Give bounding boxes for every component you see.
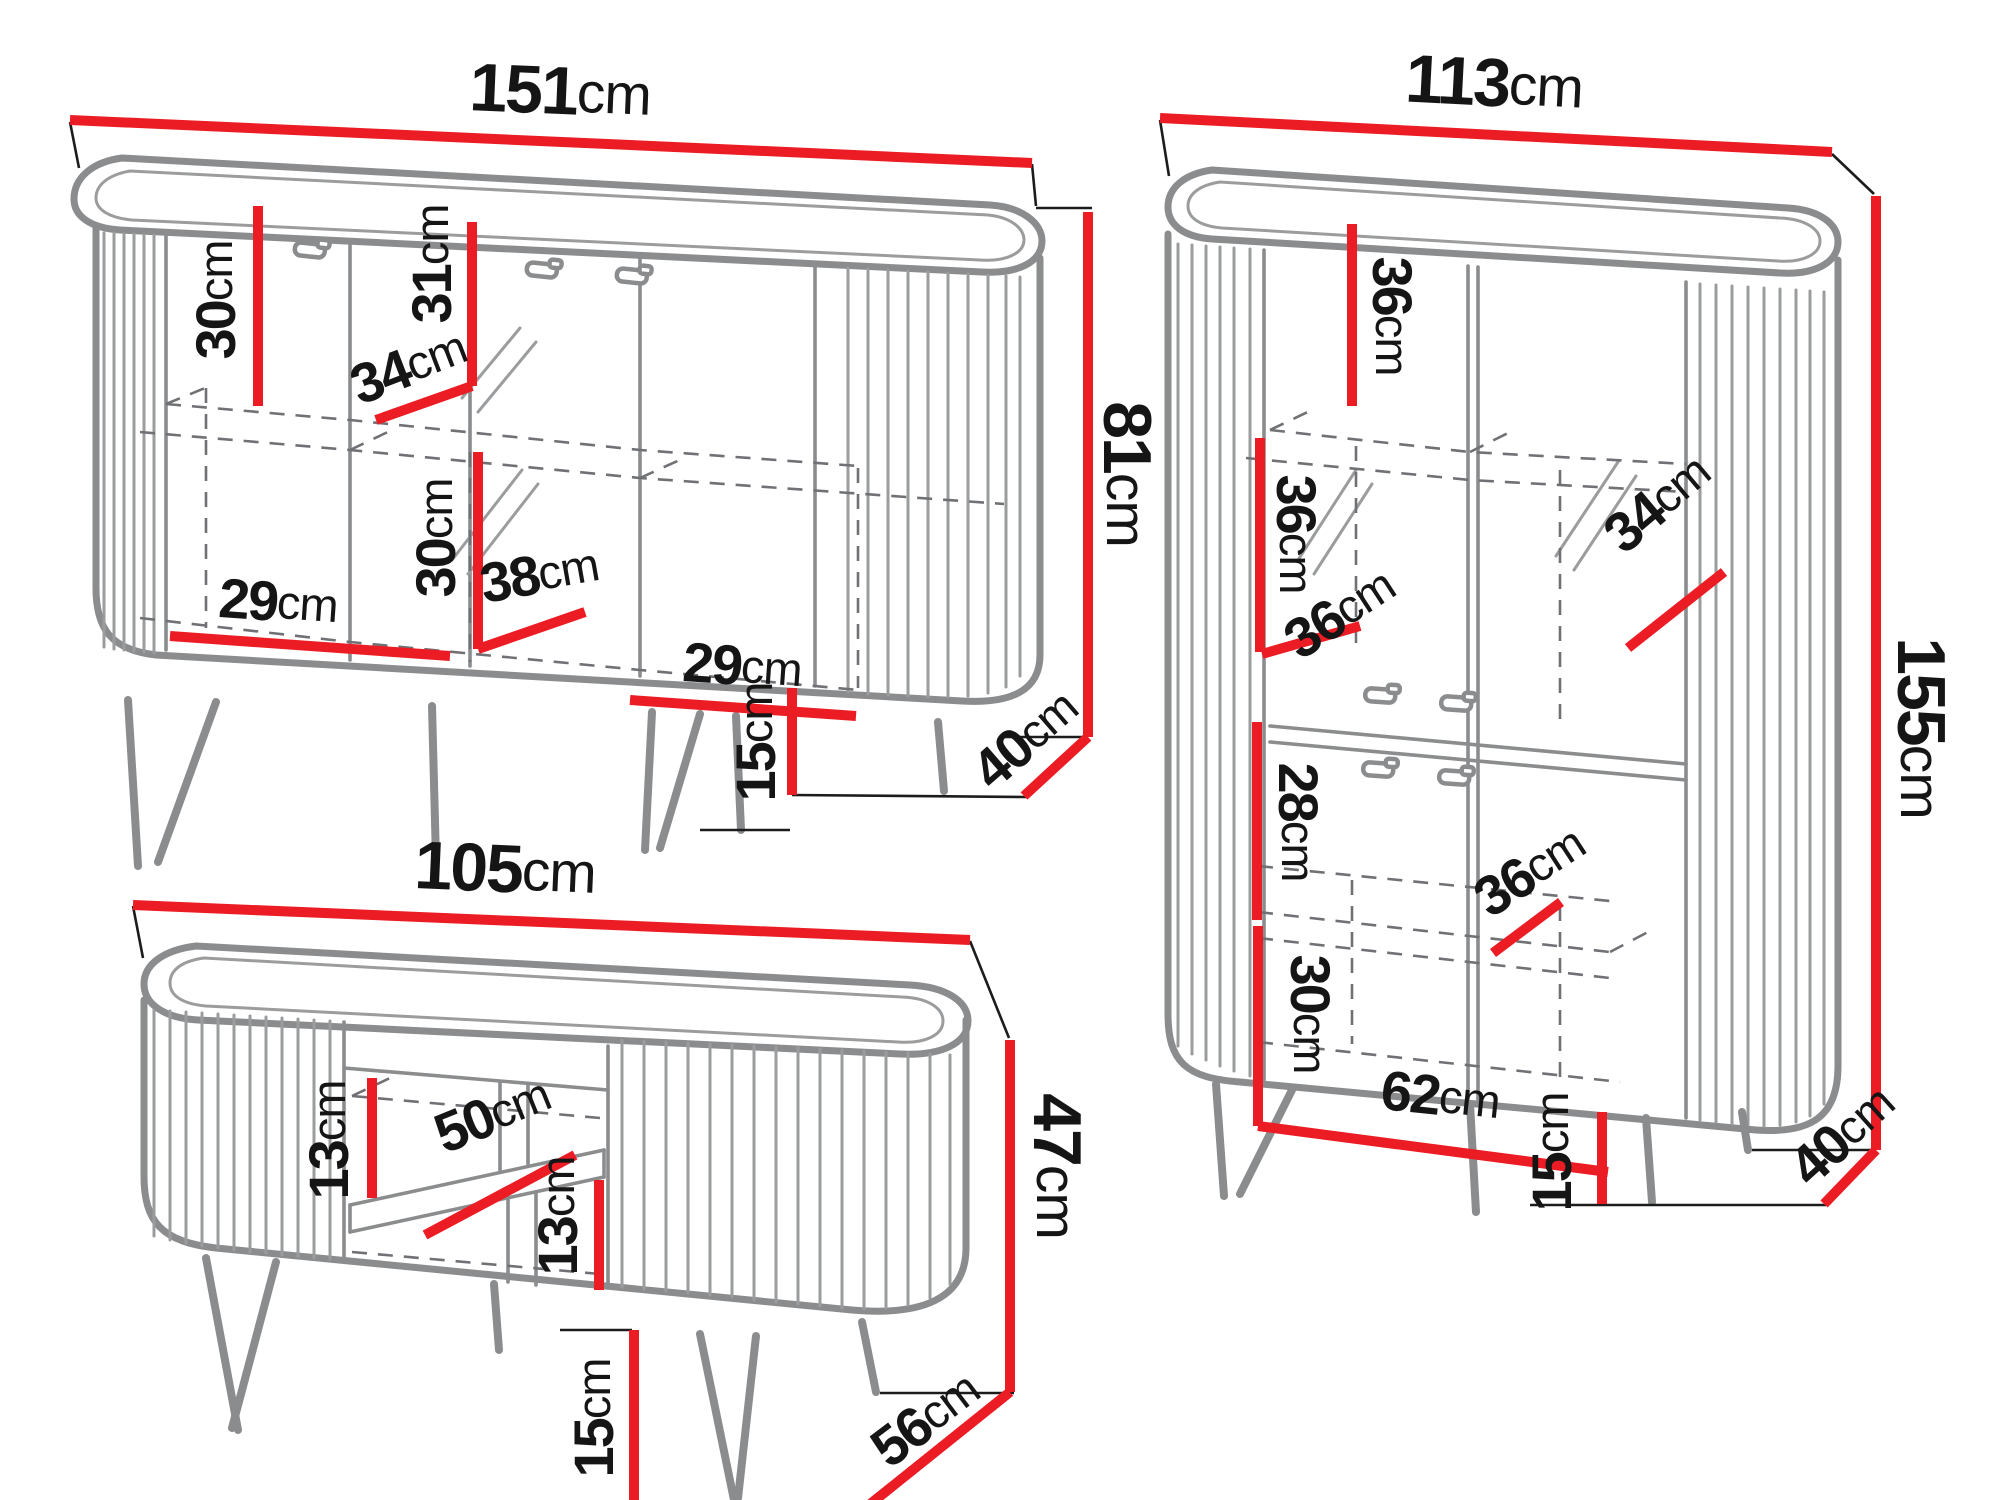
sideboard-door-height-label: 31cm: [400, 205, 463, 324]
sideboard-lower-width-label: 38cm: [475, 532, 603, 615]
sideboard-bottom-left-label: 29cm: [217, 566, 340, 637]
sideboard-height-label: 81cm: [1089, 401, 1165, 547]
sideboard-depth-label: 40cm: [959, 676, 1090, 802]
cabinet-dim-lines: [1160, 118, 1876, 1204]
cabinet-width-label: 113cm: [1404, 40, 1585, 125]
cabinet-handles: [1363, 683, 1476, 785]
sideboard-lower-height-label: 30cm: [404, 479, 467, 598]
cabinet-bottom-width-label: 62cm: [1378, 1058, 1503, 1133]
handle-icon: [526, 257, 562, 278]
tvstand-fluting-right: [622, 1040, 950, 1309]
cabinet-top-height-label: 36cm: [1361, 257, 1424, 376]
sideboard-lower-width-dim-line: [478, 612, 585, 649]
cabinet-top-shelf-dim-line: [1628, 572, 1724, 648]
cabinet-lower-height-label: 28cm: [1267, 763, 1330, 882]
cabinet-drawing: [1168, 170, 1838, 1212]
tvstand-niche-lower-label: 13cm: [526, 1157, 589, 1276]
cabinet-fluting-left: [1178, 244, 1250, 1076]
tvstand-niche-upper-label: 13cm: [297, 1081, 360, 1200]
handle-icon: [1441, 691, 1476, 711]
tvstand-width-dim-line: [133, 905, 970, 940]
tvstand-height-label: 47cm: [1019, 1093, 1095, 1239]
cabinet-mid-height-label: 36cm: [1265, 475, 1328, 594]
handle-icon: [1365, 683, 1400, 703]
sideboard-fluting-right: [848, 268, 1020, 697]
tvstand-leg-label: 15cm: [562, 1359, 625, 1478]
cabinet-bottom-height-label: 30cm: [1279, 955, 1342, 1074]
furniture-dimension-diagram: 151cm 81cm 40cm 30cm 31cm 34cm 30cm 38cm…: [0, 0, 2000, 1500]
handle-icon: [1439, 765, 1474, 785]
sideboard-dim-lines: [70, 120, 1088, 796]
cabinet-top-slab-inner: [1188, 182, 1820, 261]
diagram-canvas: 151cm 81cm 40cm 30cm 31cm 34cm 30cm 38cm…: [0, 0, 2000, 1500]
sideboard-fluting-left: [104, 233, 154, 653]
cabinet-lower-shelf-label: 36cm: [1462, 811, 1596, 929]
tvstand-width-label: 105cm: [413, 827, 598, 911]
cabinet-fluting-right: [1700, 284, 1824, 1126]
tvstand-top-slab-inner: [170, 958, 943, 1042]
sideboard-bottom-left-dim-line: [170, 636, 450, 656]
cabinet-width-dim-line: [1160, 118, 1832, 152]
sideboard-width-label: 151cm: [468, 49, 652, 133]
cabinet-leg-label: 15cm: [1520, 1093, 1583, 1212]
sideboard-leg-label: 15cm: [724, 683, 787, 802]
handle-icon: [1363, 757, 1398, 777]
handle-icon: [616, 263, 652, 284]
sideboard-upper-height-label: 30cm: [184, 241, 247, 360]
sideboard-shelf-depth-label: 34cm: [341, 315, 475, 416]
cabinet-height-label: 155cm: [1883, 637, 1959, 818]
cabinet-body: [1168, 234, 1838, 1131]
